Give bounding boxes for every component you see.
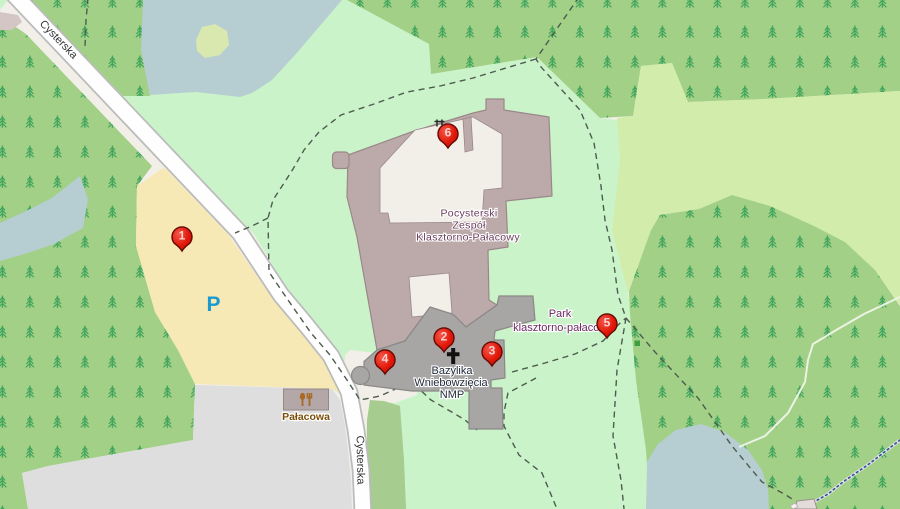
svg-text:Klasztorno-Pałacowy: Klasztorno-Pałacowy bbox=[416, 232, 520, 244]
svg-text:Park: Park bbox=[549, 308, 572, 320]
svg-text:5: 5 bbox=[604, 316, 611, 330]
svg-text:4: 4 bbox=[382, 352, 389, 366]
svg-text:Wniebowzięcia: Wniebowzięcia bbox=[414, 377, 488, 389]
svg-text:6: 6 bbox=[445, 126, 452, 140]
svg-text:Pałacowa: Pałacowa bbox=[282, 411, 330, 423]
svg-text:NMP: NMP bbox=[440, 389, 464, 401]
svg-text:Bazylika: Bazylika bbox=[432, 365, 474, 377]
svg-text:Zespół: Zespół bbox=[452, 220, 486, 232]
svg-text:2: 2 bbox=[441, 330, 448, 344]
svg-text:Cysterska: Cysterska bbox=[354, 435, 367, 485]
svg-text:3: 3 bbox=[489, 344, 496, 358]
svg-text:P: P bbox=[206, 293, 220, 316]
svg-text:1: 1 bbox=[179, 229, 186, 243]
svg-text:Pocysterski: Pocysterski bbox=[441, 208, 498, 220]
